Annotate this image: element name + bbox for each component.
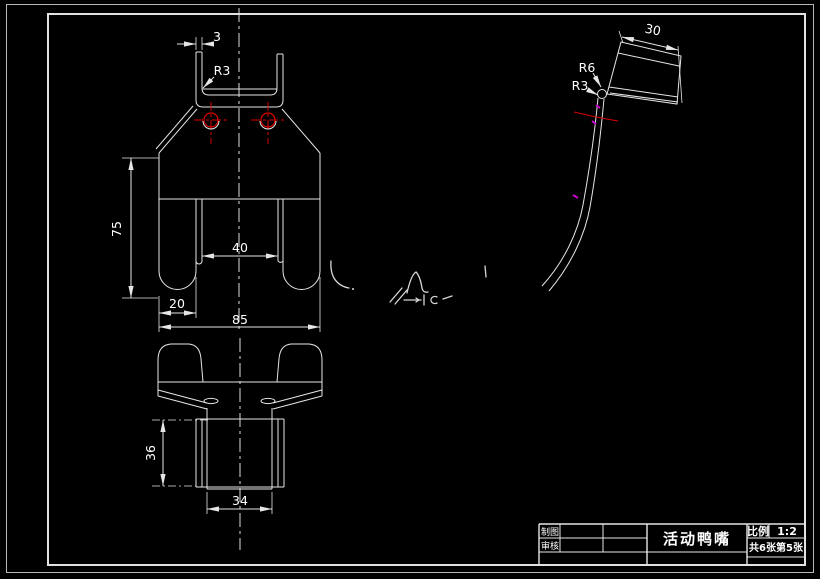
dim-center-gap: 40: [202, 240, 278, 256]
dim-block-height: 36: [143, 420, 209, 486]
front-view: 3 R3 75 40 20 85: [109, 8, 320, 332]
dim-text-r6: R6: [579, 60, 596, 75]
shoulder-lines: [156, 106, 320, 153]
head-blade: [607, 42, 681, 104]
bottom-view: 36 34: [143, 338, 322, 550]
dim-finger-width: 20: [159, 277, 196, 318]
title-block: 制图 审核 活动鸭嘴 比例 1:2 共6张第5张: [539, 524, 805, 565]
sheet-frame: [7, 5, 814, 573]
checker-label: 审核: [541, 540, 559, 552]
dim-text-30: 30: [644, 21, 663, 39]
drafter-label: 制图: [541, 526, 559, 538]
cad-drawing-canvas: 3 R3 75 40 20 85: [0, 0, 820, 579]
scale-label: 比例: [747, 524, 769, 538]
leader-r3: R3: [203, 63, 230, 88]
dim-text-85: 85: [232, 312, 248, 327]
dim-wall-thickness: 3: [177, 29, 221, 50]
dim-text-34: 34: [232, 493, 248, 508]
side-view: 30 R6 R3: [542, 21, 682, 291]
cad-drawing-svg: 3 R3 75 40 20 85: [0, 0, 820, 579]
part-name: 活动鸭嘴: [663, 530, 731, 548]
dim-text-r3: R3: [214, 63, 231, 78]
body-outline: [159, 153, 320, 290]
curved-arm: [542, 98, 604, 291]
dim-text-75: 75: [109, 221, 124, 237]
left-slot-hole: [204, 398, 218, 403]
dim-text-40: 40: [232, 240, 248, 255]
dim-text-36: 36: [143, 445, 158, 461]
right-slot-hole: [261, 398, 275, 403]
leader-r3-side: R3: [572, 78, 598, 95]
sheet-info: 共6张第5张: [749, 541, 804, 554]
dim-head-width: 30: [619, 21, 682, 103]
dim-block-width: 34: [207, 492, 272, 514]
dim-body-height: 75: [109, 158, 159, 298]
joint-circle: [598, 90, 607, 99]
plot-artifacts: [331, 261, 486, 305]
dim-text-3: 3: [213, 29, 221, 44]
dim-text-20: 20: [169, 296, 185, 311]
dim-text-r3-side: R3: [572, 78, 589, 93]
scale-value: 1:2: [777, 525, 797, 538]
